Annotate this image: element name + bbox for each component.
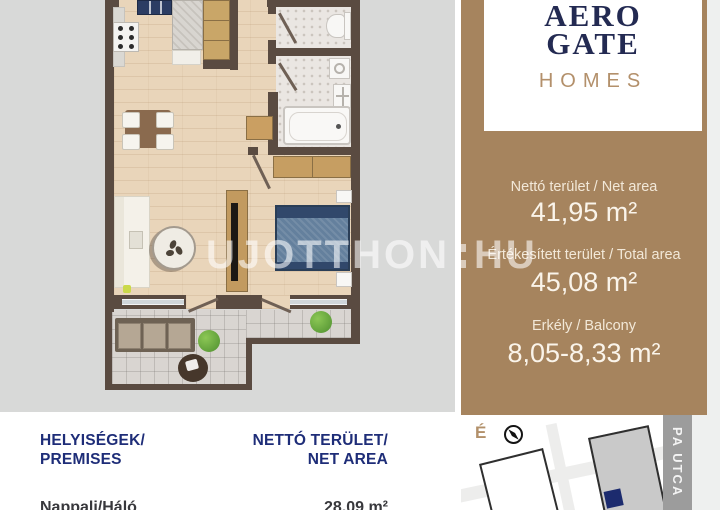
balcony-rail-left bbox=[105, 309, 112, 390]
balcony-rail-bottom-right bbox=[246, 338, 360, 344]
wall-hall-bath-1 bbox=[268, 0, 276, 14]
sidebar: AERO GATE HOMES Nettó terület / Net area… bbox=[461, 0, 707, 415]
living-window bbox=[122, 299, 184, 305]
sofa-tray bbox=[129, 231, 143, 249]
kitchen-stove bbox=[113, 22, 139, 52]
wall-right bbox=[351, 0, 360, 343]
logo-line-homes: HOMES bbox=[484, 70, 702, 93]
dining-chair bbox=[122, 112, 140, 128]
total-area-label: Értékesített terület / Total area bbox=[461, 247, 707, 263]
dining-chair bbox=[156, 112, 174, 128]
bathroom-sink bbox=[333, 84, 351, 108]
floor-plan bbox=[100, 0, 362, 394]
net-area-header: NETTÓ TERÜLET/ NET AREA bbox=[200, 431, 388, 469]
premises-header: HELYISÉGEK/ PREMISES bbox=[40, 431, 145, 469]
tv-cabinet bbox=[226, 190, 248, 292]
toilet bbox=[326, 14, 346, 38]
kitchen-window bbox=[137, 0, 172, 15]
bathtub bbox=[283, 106, 351, 145]
flyer: UJOTTHON HU AERO GATE HOMES Nettó terüle… bbox=[0, 0, 720, 510]
net-area-label: Nettó terület / Net area bbox=[461, 179, 707, 195]
balcony-sofa bbox=[115, 318, 195, 352]
table-area: HELYISÉGEK/ PREMISES NETTÓ TERÜLET/ NET … bbox=[0, 412, 461, 510]
unit-marker bbox=[604, 488, 624, 508]
dining-chair bbox=[156, 134, 174, 150]
sofa bbox=[114, 196, 150, 288]
building-highlighted bbox=[588, 425, 672, 510]
wall-bedroom-door-stub bbox=[248, 147, 258, 155]
utility-shaft bbox=[172, 0, 203, 50]
premises-header-en: PREMISES bbox=[40, 450, 145, 469]
total-area-value: 45,08 m² bbox=[461, 267, 707, 298]
table-row-value: 28,09 m² bbox=[200, 499, 388, 510]
balcony-table bbox=[178, 354, 208, 382]
wall-hall-bath-2 bbox=[268, 40, 276, 64]
bedroom-window bbox=[290, 299, 347, 305]
building-outline bbox=[479, 448, 562, 510]
sofa-accent-pillow bbox=[123, 285, 131, 293]
street-band: PA UTCA bbox=[663, 415, 692, 510]
coffee-table bbox=[152, 226, 196, 270]
logo-line-gate: GATE bbox=[484, 30, 702, 58]
balcony-area-value: 8,05-8,33 m² bbox=[461, 338, 707, 369]
net-area-header-hu: NETTÓ TERÜLET/ bbox=[200, 431, 388, 450]
washing-machine bbox=[329, 58, 350, 79]
bed bbox=[275, 205, 350, 271]
nightstand bbox=[336, 272, 352, 287]
street-name: PA UTCA bbox=[670, 427, 685, 497]
wall-wc-bath-divider bbox=[276, 48, 351, 56]
toilet-tank bbox=[344, 12, 351, 40]
hall-cabinet bbox=[246, 116, 273, 140]
wall-wardrobe-stub bbox=[203, 60, 238, 69]
balcony-floor-right bbox=[246, 310, 351, 338]
plant bbox=[198, 330, 220, 352]
compass-icon bbox=[504, 425, 523, 444]
balcony-rail-step bbox=[246, 338, 252, 390]
nightstand bbox=[336, 190, 352, 203]
bedroom-wardrobe bbox=[273, 156, 351, 178]
kitchen-cabinet bbox=[172, 50, 201, 65]
tv bbox=[231, 203, 238, 281]
north-label: É bbox=[475, 423, 486, 443]
dining-chair bbox=[122, 134, 140, 150]
wall-bath-bedroom bbox=[278, 147, 351, 155]
hall-wardrobe bbox=[203, 0, 230, 60]
wall-top-corner bbox=[105, 0, 119, 7]
plant bbox=[310, 311, 332, 333]
site-map: É PA UTCA bbox=[461, 415, 707, 510]
balcony-area-label: Erkély / Balcony bbox=[461, 318, 707, 334]
logo-card: AERO GATE HOMES bbox=[484, 0, 702, 131]
bathtub-drain bbox=[336, 124, 341, 129]
wall-top-right bbox=[267, 0, 360, 7]
net-area-header-en: NET AREA bbox=[200, 450, 388, 469]
right-edge-strip bbox=[707, 0, 720, 510]
table-row-name: Nappali/Háló bbox=[40, 499, 137, 510]
premises-header-hu: HELYISÉGEK/ bbox=[40, 431, 145, 450]
balcony-rail-bottom-left bbox=[105, 384, 252, 390]
net-area-value: 41,95 m² bbox=[461, 197, 707, 228]
